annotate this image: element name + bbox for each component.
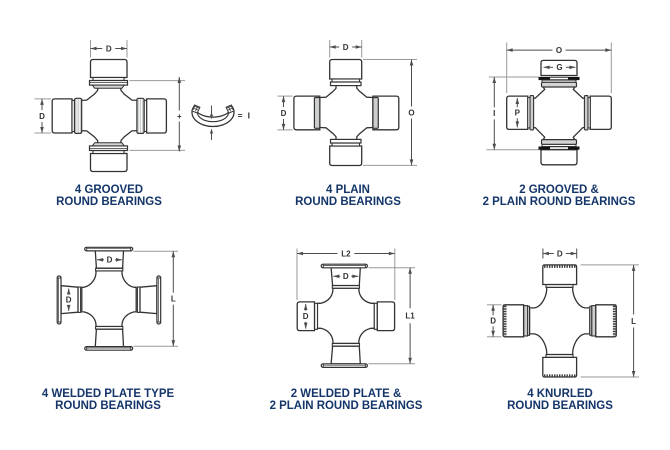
svg-text:D: D — [557, 249, 563, 258]
svg-text:I: I — [493, 109, 495, 118]
svg-text:=: = — [238, 111, 243, 121]
svg-text:D: D — [343, 43, 349, 52]
svg-text:L1: L1 — [405, 312, 415, 321]
svg-text:I: I — [248, 111, 250, 121]
svg-text:+: + — [177, 112, 182, 121]
svg-text:O: O — [556, 46, 562, 55]
svg-text:P: P — [515, 109, 521, 118]
svg-text:D: D — [303, 312, 309, 321]
svg-text:L: L — [631, 317, 636, 326]
svg-text:D: D — [281, 109, 287, 118]
svg-text:G: G — [556, 63, 562, 72]
svg-text:L2: L2 — [341, 249, 351, 258]
svg-text:D: D — [66, 296, 72, 305]
svg-text:D: D — [106, 44, 112, 53]
svg-text:L: L — [171, 295, 176, 304]
svg-text:D: D — [343, 272, 349, 281]
svg-text:O: O — [408, 108, 414, 117]
svg-text:D: D — [39, 112, 45, 121]
svg-text:D: D — [107, 256, 113, 265]
svg-text:D: D — [490, 317, 496, 326]
